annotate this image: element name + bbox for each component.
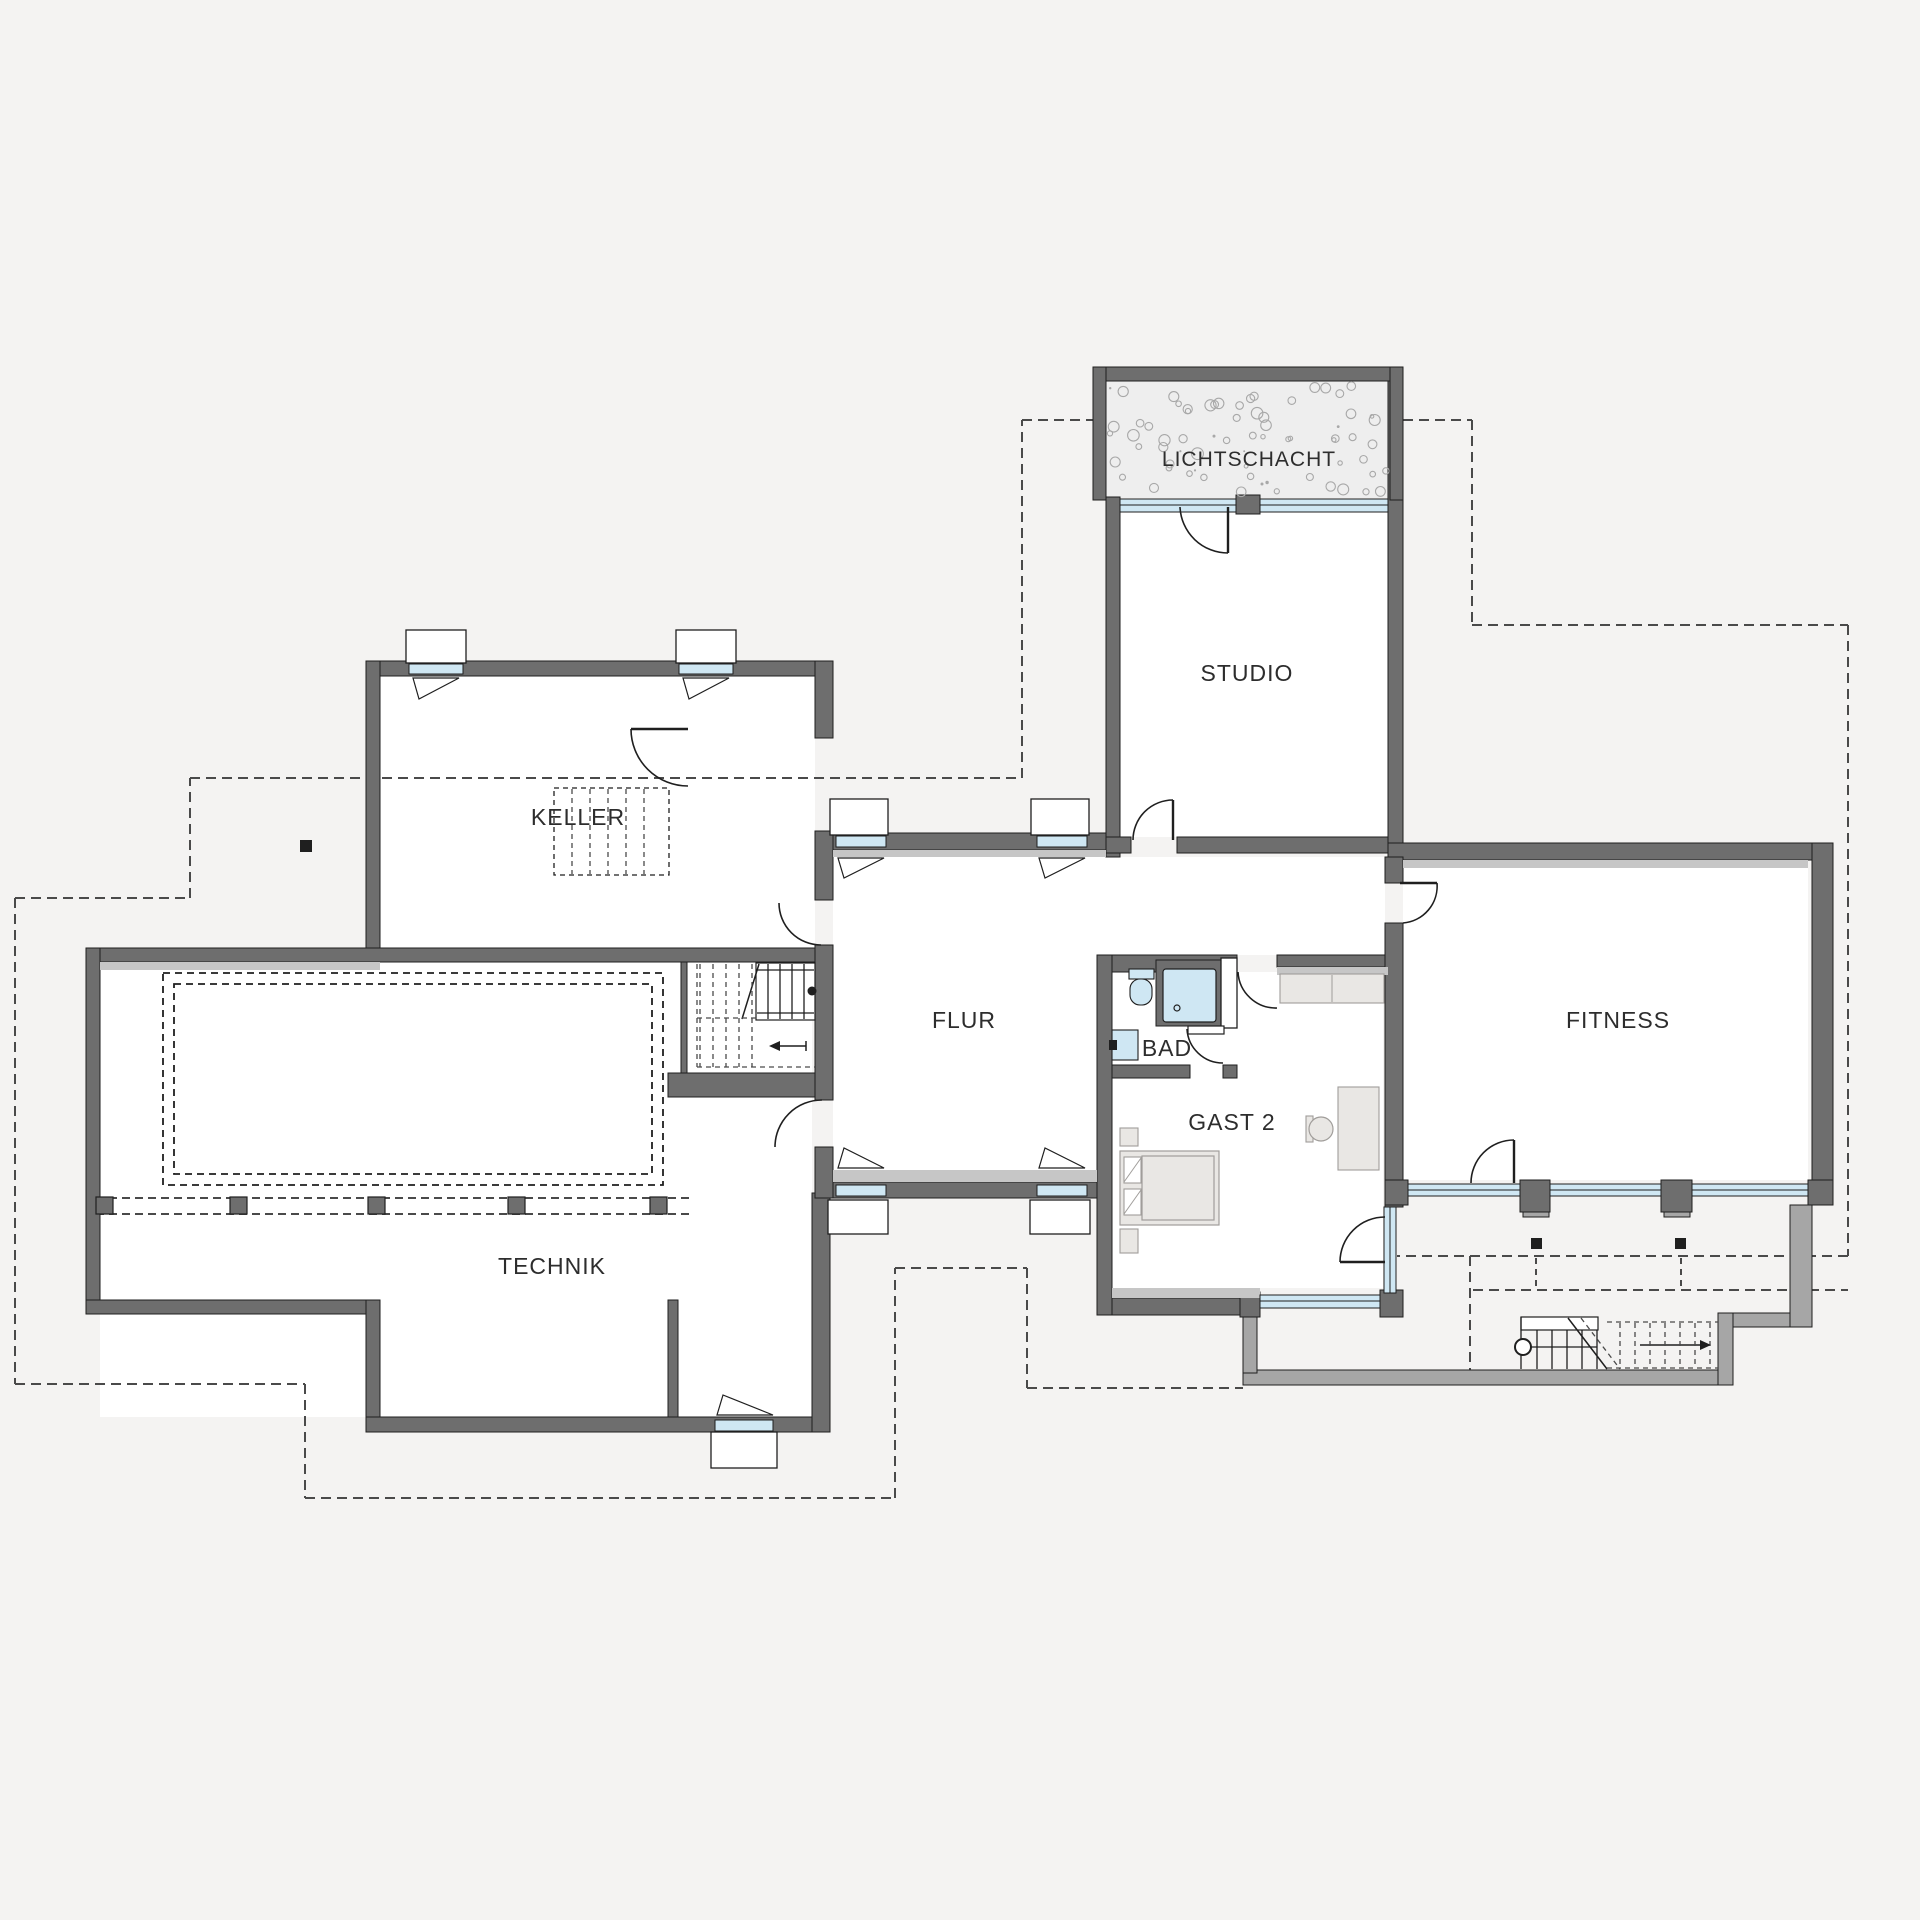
wall-lichtschacht-north [1093,367,1403,381]
wall-flur-west-a [815,831,833,900]
lichtschacht-gravel-bed [1106,381,1390,498]
wall-studio-west [1106,497,1120,857]
survey-marker [300,840,312,852]
wall-southwest-step [86,1300,380,1314]
column [230,1197,247,1214]
gravel-stone [1265,481,1268,484]
newel-dot [808,987,817,996]
wall-fitness-west-b [1385,923,1403,1207]
toilet-tank [1129,969,1154,979]
terrace-wall [1243,1317,1257,1373]
gravel-stone [1213,435,1216,438]
gravel-stone [1109,387,1111,389]
window-keller [679,664,733,674]
lightwell [711,1432,777,1468]
wall-gast-south [1112,1298,1260,1315]
wall-gast-west [1097,955,1112,1315]
column [508,1197,525,1214]
wall-studio-south-b [1177,837,1388,853]
label-flur: FLUR [932,1007,996,1033]
nightstand [1120,1128,1138,1146]
terrace-wall [1243,1370,1733,1385]
lightwell [676,630,736,663]
lining [833,1170,1097,1182]
label-fitness: FITNESS [1566,1007,1670,1033]
wall-gast-north [1277,955,1388,967]
wall-fitness-north [1388,843,1833,860]
terrace-wall [1718,1313,1733,1385]
bed-mattress [1142,1156,1214,1220]
lightwell [828,1200,888,1234]
ext-newel [1515,1339,1531,1355]
floor-plan-canvas: LICHTSCHACHTSTUDIOKELLERFLURBADGAST 2FIT… [0,0,1920,1920]
wall-stair-west [681,962,687,1073]
lining [100,962,380,970]
stair-flight-box [756,963,815,1020]
wall-stair-south [668,1073,815,1097]
wall-west-left [86,948,100,1314]
label-technik: TECHNIK [498,1253,606,1279]
label-keller: KELLER [531,804,625,830]
wall-gast-south-block-e [1380,1290,1403,1317]
corridor-floor [1097,857,1385,955]
gravel-stone [1261,483,1264,486]
nightstand [1120,1229,1138,1253]
wall-technik-east [812,1193,830,1432]
window-keller [409,664,463,674]
column [96,1197,113,1214]
window-flur-south [836,1185,886,1196]
washbasin-tap [1109,1040,1117,1050]
label-lichtschacht: LICHTSCHACHT [1162,448,1336,471]
lightwell [830,799,888,835]
wall-fitness-pillar [1520,1180,1550,1212]
wall-studio-south-a [1106,837,1131,853]
wall-fitness-sw-block [1385,1180,1408,1205]
wall-fitness-east [1812,843,1833,1205]
lightwell [406,630,466,663]
lining [1112,1288,1260,1298]
label-bad: BAD [1142,1035,1192,1061]
wall-bad-south-a [1112,1065,1190,1078]
wall-lichtschacht-west [1093,367,1106,500]
window-flur-south [1037,1185,1087,1196]
west-technik-floor [100,962,812,1417]
window-flur-north [1037,836,1087,847]
label-studio: STUDIO [1201,660,1294,686]
floor-plan-page: LICHTSCHACHTSTUDIOKELLERFLURBADGAST 2FIT… [0,0,1920,1920]
wall-bad-south-b [1223,1065,1237,1078]
wall-fitness-se-block [1808,1180,1833,1205]
column [650,1197,667,1214]
terrace-post [1675,1238,1686,1249]
gravel-stone [1337,425,1340,428]
window-technik [715,1420,773,1431]
wall-flur-west-c [815,1147,833,1198]
wall-flur-west-b [815,945,833,1100]
terrace-post [1531,1238,1542,1249]
window-flur-north [836,836,886,847]
lightwell [1031,799,1089,835]
bad-partition [1221,958,1237,1028]
terrace-wall [1790,1205,1812,1327]
shower-tray [1163,969,1216,1022]
label-gast2: GAST 2 [1188,1109,1275,1135]
column [368,1197,385,1214]
wall-step-vert [366,1300,380,1432]
lining [833,850,1106,857]
lightwell [1030,1200,1090,1234]
wall-fitness-west-a [1385,857,1403,883]
wall-mid-horizontal [86,948,833,962]
wall-fitness-pillar [1661,1180,1692,1212]
wall-keller-left [366,661,380,962]
wall-studio-window-mullion [1236,495,1260,514]
toilet-bowl [1130,979,1152,1005]
bad-door-leaf [1188,1026,1224,1034]
lining [1403,860,1808,868]
desk [1338,1087,1379,1170]
ext-stair-stringer [1521,1317,1598,1330]
wall-keller-east [815,661,833,738]
chair-seat [1309,1117,1333,1141]
wall-technik-inner [668,1300,678,1417]
wall-lichtschacht-east [1390,367,1403,500]
